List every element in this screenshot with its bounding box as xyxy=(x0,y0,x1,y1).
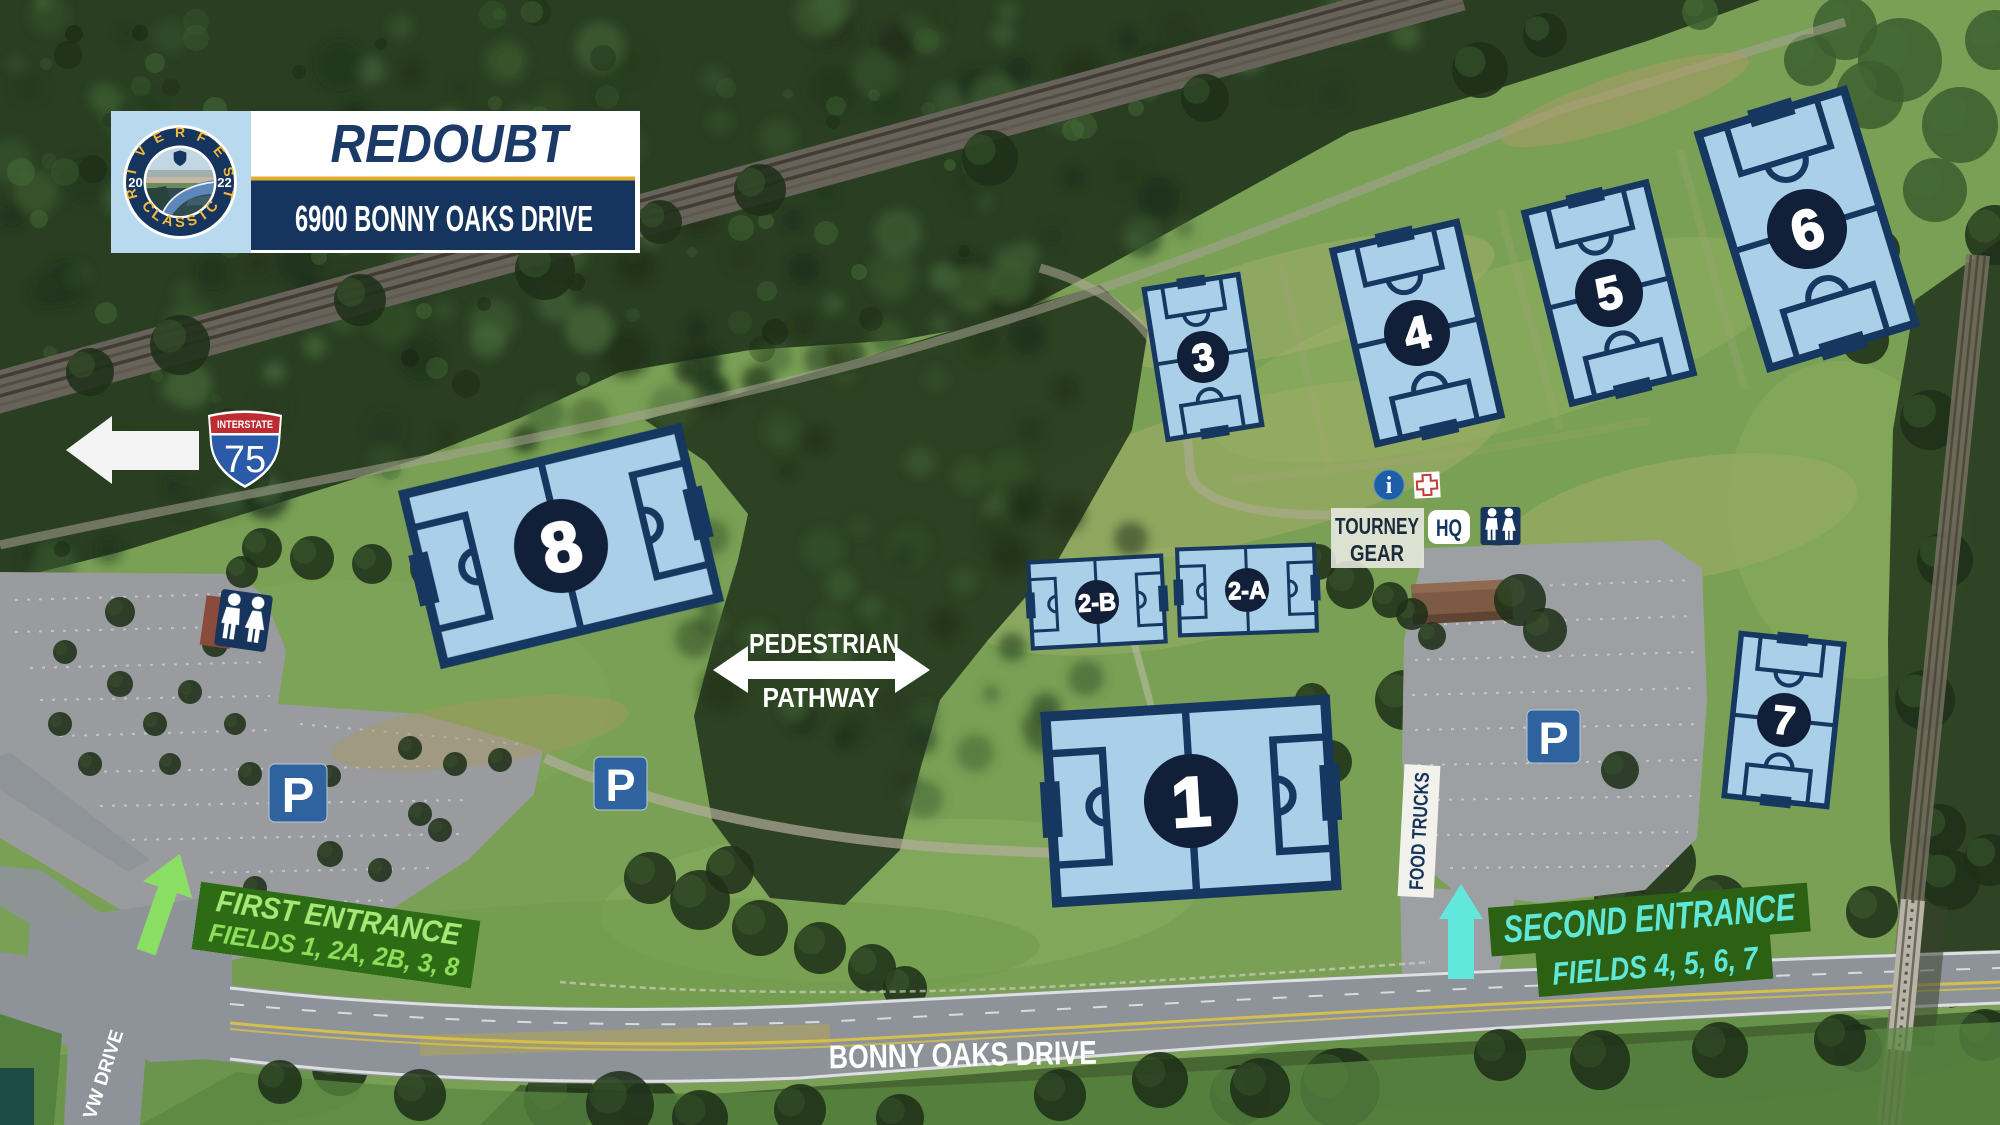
svg-text:i: i xyxy=(1386,473,1393,499)
svg-text:20: 20 xyxy=(128,175,142,190)
svg-text:TOURNEY: TOURNEY xyxy=(1335,513,1419,539)
svg-text:INTERSTATE: INTERSTATE xyxy=(217,419,273,431)
svg-text:6900 BONNY OAKS DRIVE: 6900 BONNY OAKS DRIVE xyxy=(295,198,593,239)
svg-text:2-A: 2-A xyxy=(1228,576,1267,605)
svg-text:S: S xyxy=(175,215,185,231)
svg-text:GEAR: GEAR xyxy=(1350,540,1404,566)
svg-text:75: 75 xyxy=(224,439,266,481)
svg-text:7: 7 xyxy=(1771,698,1798,744)
svg-text:R: R xyxy=(175,124,185,140)
svg-text:P: P xyxy=(605,760,635,811)
svg-text:2-B: 2-B xyxy=(1077,588,1116,618)
svg-text:22: 22 xyxy=(217,175,231,190)
svg-text:PATHWAY: PATHWAY xyxy=(763,682,880,713)
svg-text:PEDESTRIAN: PEDESTRIAN xyxy=(749,628,899,659)
svg-text:P: P xyxy=(1538,713,1568,764)
svg-text:BONNY OAKS DRIVE: BONNY OAKS DRIVE xyxy=(828,1034,1097,1076)
svg-text:P: P xyxy=(282,769,315,823)
svg-text:1: 1 xyxy=(1169,762,1213,842)
svg-text:HQ: HQ xyxy=(1436,515,1462,542)
svg-text:REDOUBT: REDOUBT xyxy=(331,114,572,174)
